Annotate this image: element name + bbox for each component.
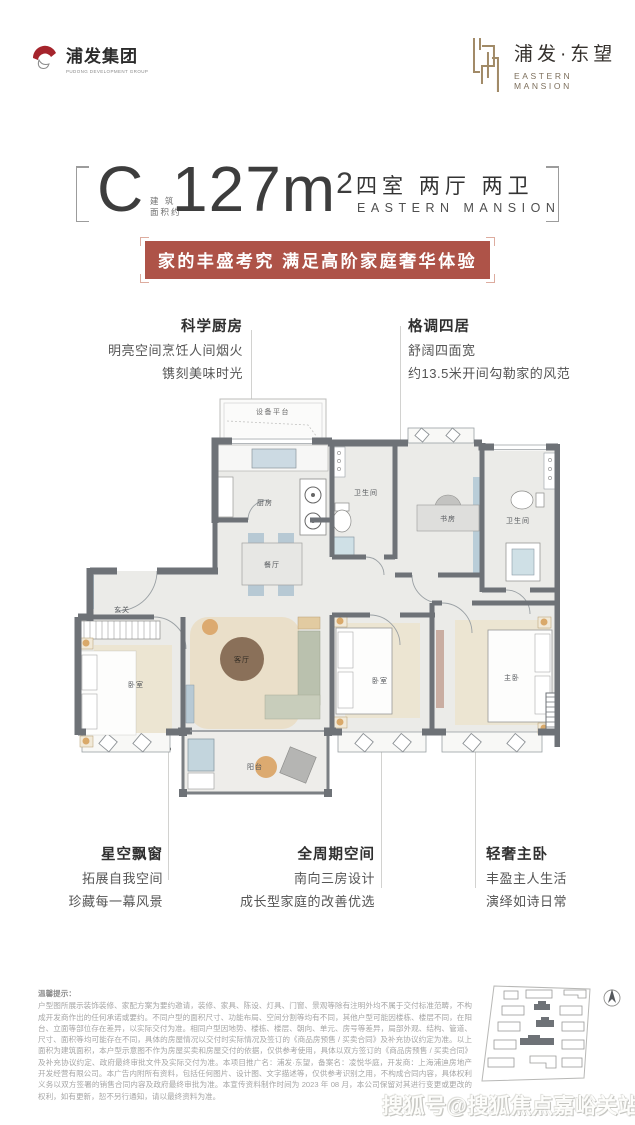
callout-bay-window: 星空飘窗 拓展自我空间 珍藏每一幕风景 [0, 844, 163, 913]
project-logo-text: 浦发·东望 EASTERN MANSION [514, 39, 635, 91]
area-exponent: 2 [336, 167, 353, 200]
group-logo-sub: PUDONG DEVELOPMENT GROUP [66, 69, 148, 74]
room-label-bedroom1: 卧室 [128, 680, 144, 689]
banner-corner [486, 274, 495, 283]
floor-plan: 设备平台 [70, 395, 560, 815]
banner-corner [486, 237, 495, 246]
callout-bay-window-title: 星空飘窗 [0, 844, 163, 867]
callout-four-rooms: 格调四居 舒阔四面宽 约13.5米开间勾勒家的风范 [408, 316, 628, 385]
callout-kitchen-line1: 明亮空间烹饪人间烟火 [23, 339, 243, 362]
room-label-bedroom2: 卧室 [372, 676, 388, 685]
area-value: 127m [172, 153, 336, 225]
slogan-banner: 家的丰盛考究 满足高阶家庭奢华体验 [145, 241, 490, 279]
slogan-text: 家的丰盛考究 满足高阶家庭奢华体验 [158, 252, 477, 271]
callout-four-rooms-line2: 约13.5米开间勾勒家的风范 [408, 362, 628, 385]
room-label-bath2: 卫生间 [506, 516, 530, 525]
room-label-master: 主卧 [504, 673, 520, 682]
callout-master-line2: 演绎如诗日常 [486, 890, 635, 913]
project-logo-sub: EASTERN MANSION [514, 71, 635, 91]
callout-bay-window-line1: 拓展自我空间 [0, 867, 163, 890]
room-label-entry: 玄关 [114, 605, 130, 614]
callout-full-cycle-line2: 成长型家庭的改善优选 [155, 890, 375, 913]
project-logo-name: 浦发·东望 [514, 39, 635, 66]
group-logo-icon [30, 42, 60, 74]
project-logo-icon [468, 36, 504, 94]
banner-corner [140, 274, 149, 283]
room-label-equipment-platform: 设备平台 [256, 407, 290, 416]
callout-kitchen-title: 科学厨房 [23, 316, 243, 339]
unit-layout: 四室 两厅 两卫 [356, 170, 534, 200]
title-bracket-left [76, 166, 88, 222]
room-label-dining: 餐厅 [264, 560, 280, 569]
callout-kitchen: 科学厨房 明亮空间烹饪人间烟火 镌刻美味时光 [23, 316, 243, 385]
disclaimer-title: 温馨提示： [38, 988, 472, 999]
callout-kitchen-line2: 镌刻美味时光 [23, 362, 243, 385]
room-label-study: 书房 [440, 514, 456, 523]
callout-master-title: 轻奢主卧 [486, 844, 635, 867]
room-label-kitchen: 厨房 [257, 498, 273, 507]
floorplan-poster: { "header": { "group_logo": { "text": "浦… [0, 0, 635, 1125]
callout-master: 轻奢主卧 丰盈主人生活 演绎如诗日常 [486, 844, 635, 913]
callout-full-cycle: 全周期空间 南向三房设计 成长型家庭的改善优选 [155, 844, 375, 913]
banner-corner [140, 237, 149, 246]
callout-bay-window-line2: 珍藏每一幕风景 [0, 890, 163, 913]
unit-area: 127m2 [172, 152, 353, 226]
callout-four-rooms-line1: 舒阔四面宽 [408, 339, 628, 362]
slogan-banner-wrap: 家的丰盛考究 满足高阶家庭奢华体验 [0, 241, 635, 279]
disclaimer: 温馨提示： 户型图所展示装饰装修、家配方案为要约邀请，装修、家具、陈设、灯具、门… [38, 988, 472, 1102]
callout-four-rooms-title: 格调四居 [408, 316, 628, 339]
room-label-living: 客厅 [234, 655, 250, 664]
callout-master-line1: 丰盈主人生活 [486, 867, 635, 890]
equipment-platform: 设备平台 [220, 399, 326, 443]
project-logo: 浦发·东望 EASTERN MANSION [468, 36, 635, 94]
unit-layout-sub: EASTERN MANSION [357, 201, 560, 215]
group-logo-text: 浦发集团 PUDONG DEVELOPMENT GROUP [66, 42, 148, 74]
callout-full-cycle-line1: 南向三房设计 [155, 867, 375, 890]
callout-full-cycle-title: 全周期空间 [155, 844, 375, 867]
group-logo: 浦发集团 PUDONG DEVELOPMENT GROUP [30, 42, 148, 74]
disclaimer-body: 户型图所展示装饰装修、家配方案为要约邀请，装修、家具、陈设、灯具、门窗、景观等除… [38, 1001, 472, 1100]
watermark: 搜狐号@搜狐焦点嘉峪关站 [382, 1090, 635, 1120]
room-label-bath1: 卫生间 [354, 488, 378, 497]
compass-icon [604, 989, 620, 1006]
group-logo-name: 浦发集团 [66, 42, 148, 67]
site-plan [478, 984, 628, 1084]
room-label-balcony: 阳台 [247, 762, 263, 771]
unit-letter: C [97, 152, 143, 226]
